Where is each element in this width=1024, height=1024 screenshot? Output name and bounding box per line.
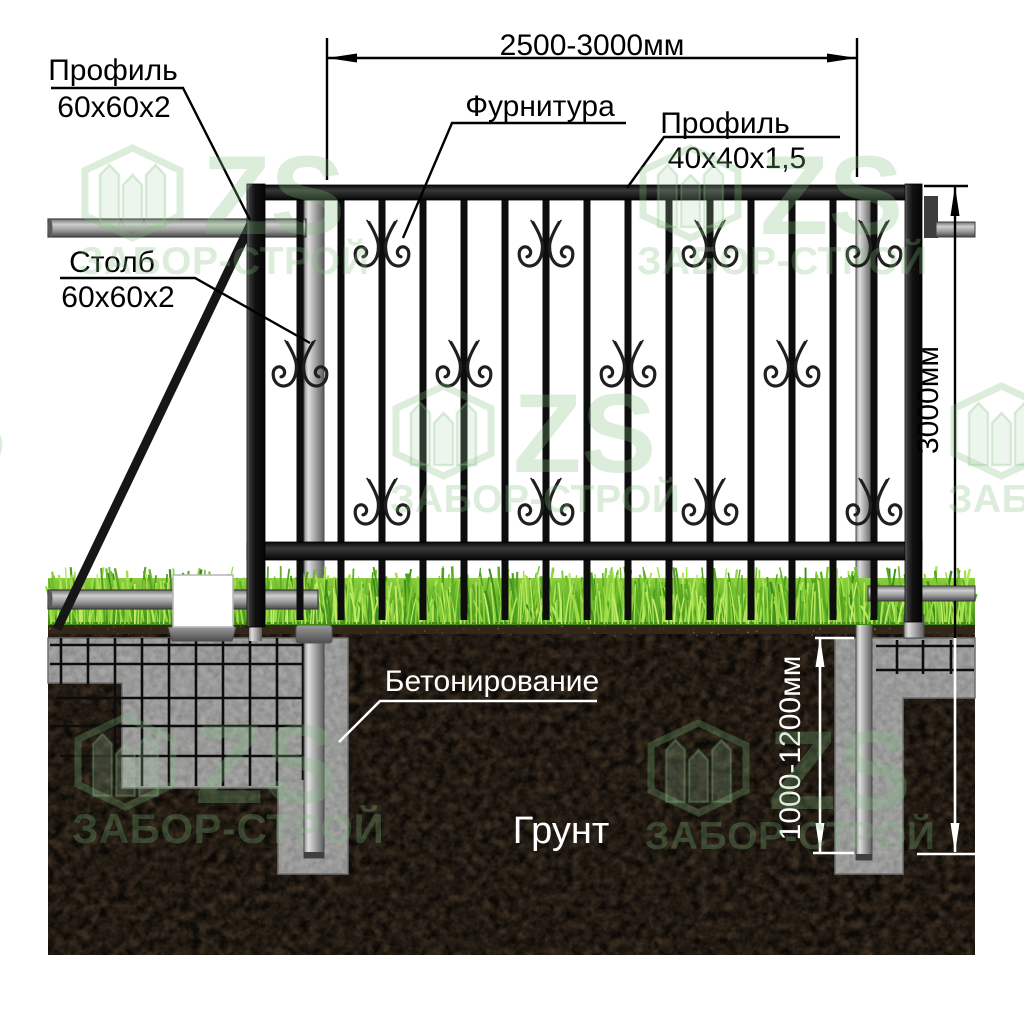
svg-text:Фурнитура: Фурнитура — [465, 90, 615, 123]
svg-text:ЗАБОР-СТРОЙ: ЗАБОР-СТРОЙ — [390, 476, 680, 521]
svg-text:Бетонирование: Бетонирование — [385, 665, 599, 698]
svg-text:2500-3000мм: 2500-3000мм — [500, 29, 685, 62]
svg-text:ЗАБОР-СТРОЙ: ЗАБОР-СТРОЙ — [948, 476, 1024, 521]
svg-text:ЗАБОР-СТРОЙ: ЗАБОР-СТРОЙ — [645, 813, 935, 858]
svg-text:ЗАБОР-СТРОЙ: ЗАБОР-СТРОЙ — [637, 238, 927, 283]
svg-text:S: S — [0, 366, 7, 491]
svg-text:ЗАБОР-СТРОЙ: ЗАБОР-СТРОЙ — [72, 804, 384, 852]
svg-text:60х60х2: 60х60х2 — [61, 281, 174, 314]
svg-text:60х60х2: 60х60х2 — [57, 91, 170, 124]
svg-text:ЗАБОР-СТРОЙ: ЗАБОР-СТРОЙ — [79, 238, 369, 283]
svg-text:Профиль: Профиль — [48, 54, 178, 87]
svg-text:3000мм: 3000мм — [912, 346, 945, 454]
svg-text:Грунт: Грунт — [513, 810, 610, 852]
